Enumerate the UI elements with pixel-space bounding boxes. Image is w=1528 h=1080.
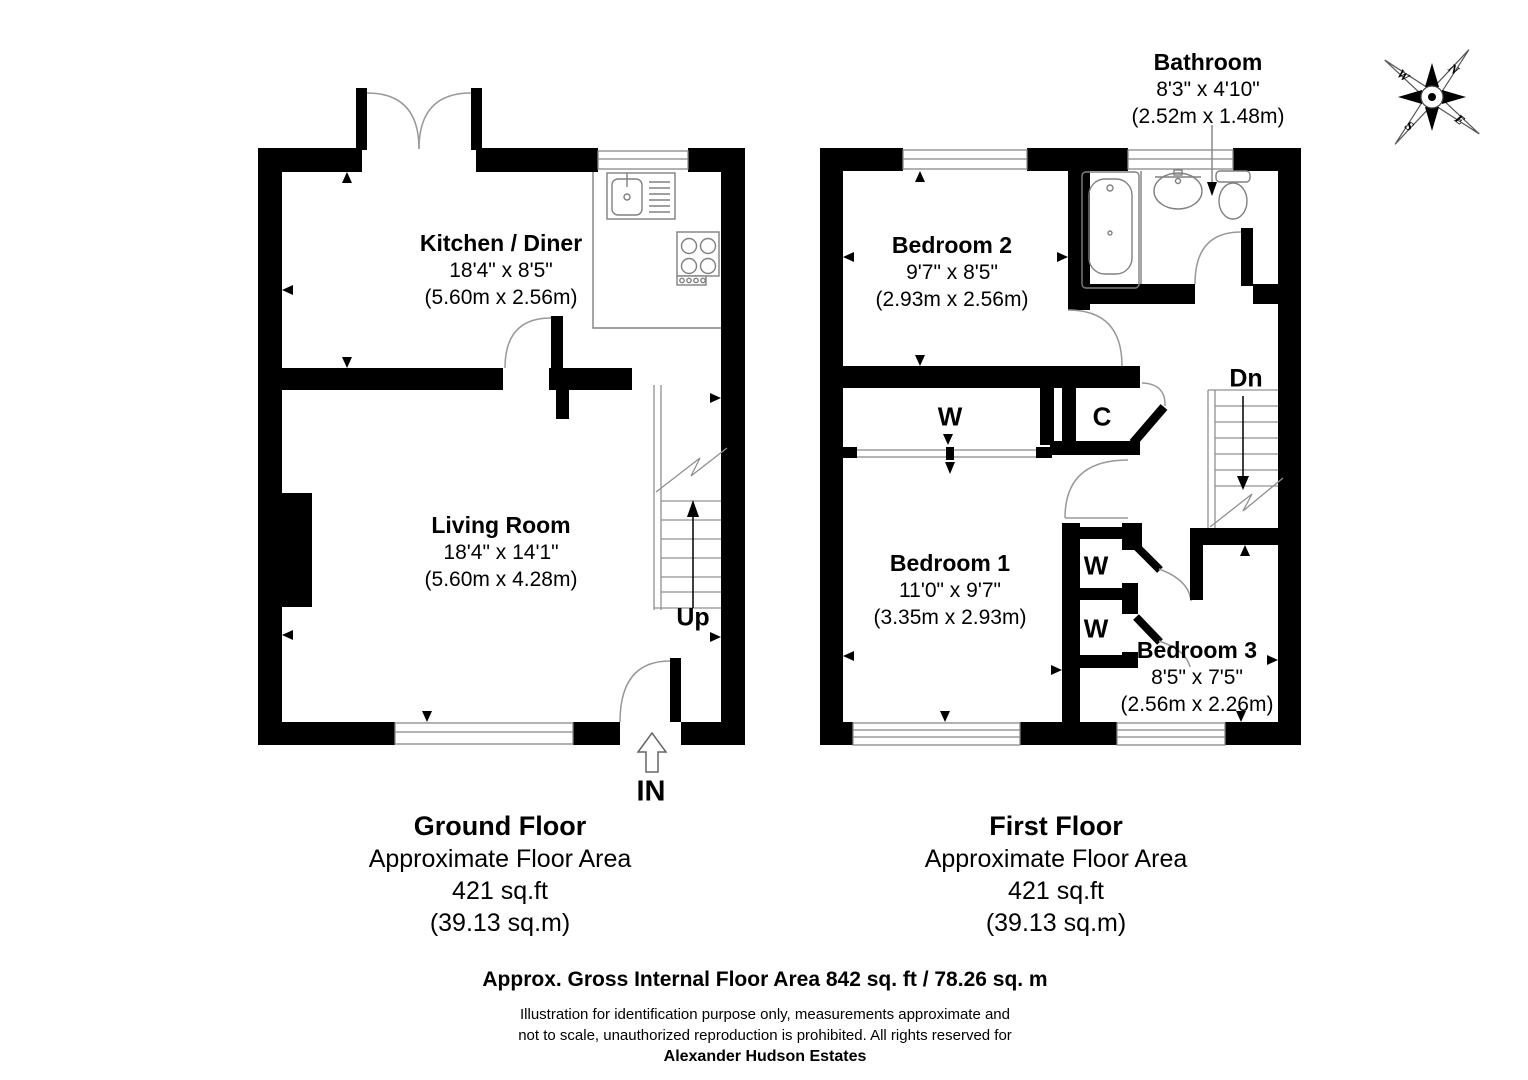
- floor-title: Ground Floor: [369, 810, 632, 843]
- cupboard-label: C: [1093, 402, 1112, 433]
- kitchen-door-leaf: [551, 316, 563, 370]
- floor-title: First Floor: [925, 810, 1188, 843]
- footer: Approx. Gross Internal Floor Area 842 sq…: [482, 968, 1047, 1067]
- floor-area-caption: Approximate Floor Area: [925, 843, 1188, 875]
- floor-area-sqft: 421 sq.ft: [925, 875, 1188, 907]
- room-dims-imperial: 18'4" x 14'1": [425, 539, 578, 566]
- room-dims-metric: (5.60m x 4.28m): [425, 566, 578, 593]
- patio-door-leaf-right: [471, 88, 482, 150]
- wardrobe-label-main: W: [938, 402, 963, 433]
- disclaimer-line-1: Illustration for identification purpose …: [482, 1004, 1047, 1025]
- floor-area-sqm: (39.13 sq.m): [925, 907, 1188, 939]
- gf-staircase: [654, 385, 727, 610]
- room-dims-imperial: 8'3" x 4'10": [1132, 76, 1285, 103]
- room-name: Living Room: [425, 512, 578, 539]
- cupboard-door-leaf: [1133, 407, 1164, 443]
- closet1-door-leaf: [1136, 546, 1160, 570]
- floor-area-sqm: (39.13 sq.m): [369, 907, 632, 939]
- room-label-bedroom-3: Bedroom 3 8'5" x 7'5" (2.56m x 2.26m): [1121, 637, 1274, 718]
- room-dims-imperial: 11'0" x 9'7": [874, 577, 1027, 604]
- room-name: Bathroom: [1132, 49, 1285, 76]
- room-label-kitchen-diner: Kitchen / Diner 18'4" x 8'5" (5.60m x 2.…: [420, 230, 582, 311]
- gross-floor-area: Approx. Gross Internal Floor Area 842 sq…: [482, 968, 1047, 992]
- room-dims-metric: (2.52m x 1.48m): [1132, 103, 1285, 130]
- room-dims-metric: (2.93m x 2.56m): [876, 286, 1029, 313]
- floor-area-caption: Approximate Floor Area: [369, 843, 632, 875]
- room-name: Bedroom 1: [874, 550, 1027, 577]
- room-name: Bedroom 3: [1121, 637, 1274, 664]
- stairs-up-label: Up: [676, 604, 709, 633]
- bathroom-fixtures: [1082, 170, 1250, 288]
- ground-floor-plan: [258, 88, 745, 772]
- front-door-leaf: [670, 658, 681, 722]
- room-label-bathroom: Bathroom 8'3" x 4'10" (2.52m x 1.48m): [1132, 49, 1285, 130]
- toilet-icon: [1216, 171, 1250, 182]
- room-name: Kitchen / Diner: [420, 230, 582, 257]
- compass-rose: N E S W: [1348, 13, 1516, 181]
- floor-area-sqft: 421 sq.ft: [369, 875, 632, 907]
- room-dims-imperial: 9'7" x 8'5": [876, 259, 1029, 286]
- wardrobe-label-2: W: [1084, 614, 1109, 645]
- room-dims-metric: (3.35m x 2.93m): [874, 604, 1027, 631]
- ground-floor-caption: Ground Floor Approximate Floor Area 421 …: [369, 810, 632, 939]
- agency-name: Alexander Hudson Estates: [482, 1046, 1047, 1067]
- ff-staircase: [1208, 390, 1283, 528]
- bathroom-door-leaf: [1241, 228, 1253, 286]
- floor-plan-graphics: N E S W: [0, 0, 1528, 1080]
- room-label-bedroom-2: Bedroom 2 9'7" x 8'5" (2.93m x 2.56m): [876, 232, 1029, 313]
- room-label-bedroom-1: Bedroom 1 11'0" x 9'7" (3.35m x 2.93m): [874, 550, 1027, 631]
- patio-door-leaf-left: [356, 88, 367, 150]
- entrance-in-label: IN: [637, 776, 666, 809]
- entrance-arrow-icon: [638, 733, 666, 772]
- hob-icon: [677, 232, 719, 276]
- floorplan-canvas: N E S W Kitchen / Diner 18'4" x 8'5" (5.…: [0, 0, 1528, 1080]
- room-name: Bedroom 2: [876, 232, 1029, 259]
- first-floor-caption: First Floor Approximate Floor Area 421 s…: [925, 810, 1188, 939]
- room-dims-imperial: 18'4" x 8'5": [420, 257, 582, 284]
- room-dims-metric: (5.60m x 2.56m): [420, 284, 582, 311]
- room-label-living-room: Living Room 18'4" x 14'1" (5.60m x 4.28m…: [425, 512, 578, 593]
- stairs-down-label: Dn: [1229, 365, 1262, 394]
- room-dims-metric: (2.56m x 2.26m): [1121, 691, 1274, 718]
- wardrobe-label-1: W: [1084, 551, 1109, 582]
- kitchen-fixtures: [593, 172, 721, 328]
- disclaimer-line-2: not to scale, unauthorized reproduction …: [482, 1025, 1047, 1046]
- room-dims-imperial: 8'5" x 7'5": [1121, 664, 1274, 691]
